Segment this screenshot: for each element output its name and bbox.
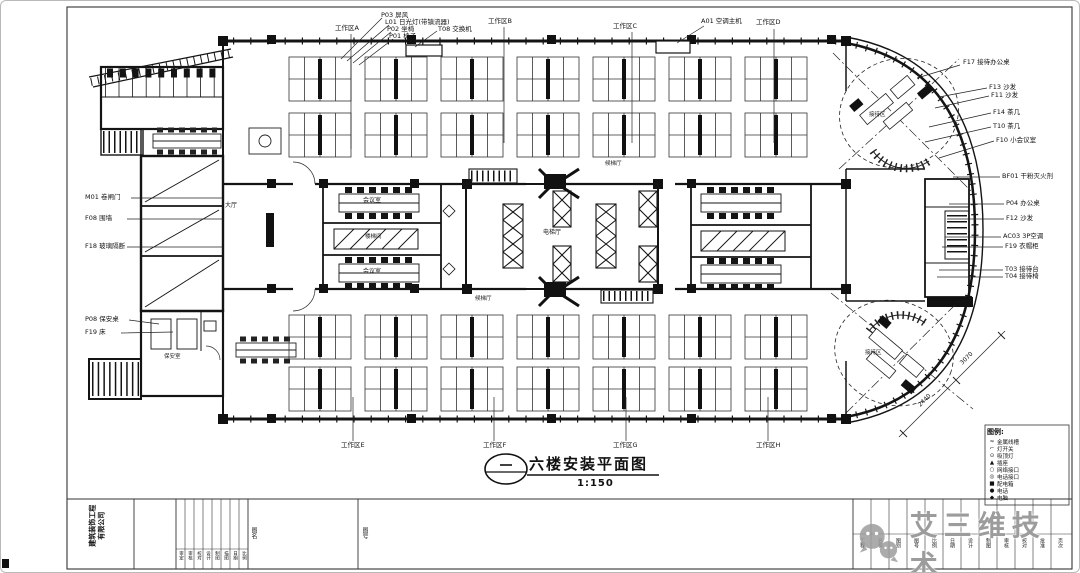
legend-symbol: ⌐: [987, 446, 997, 452]
callout-right-top-0: F17 接待办公桌: [963, 59, 1010, 66]
work-area-bottom-2: 工作区G: [613, 442, 638, 449]
callout-right-top-3: F14 茶几: [993, 109, 1020, 116]
work-area-top-3: 工作区D: [756, 19, 781, 26]
meeting-block-right: [691, 184, 811, 289]
wechat-icon: [853, 520, 905, 568]
sign-cell-1: 审核: [187, 551, 192, 560]
sign-cell-4: 制图: [214, 551, 219, 560]
room-meeting-1: 会议室: [363, 198, 381, 204]
legend-symbol: ▲: [987, 460, 997, 466]
sign-cell-2: 校对: [196, 551, 201, 560]
work-area-bottom-0: 工作区E: [341, 442, 365, 449]
sign-cell-5: 描图: [223, 551, 228, 560]
work-area-top-0: 工作区A: [335, 25, 359, 32]
legend-symbol: ◆: [987, 495, 997, 501]
floor-plan-drawing: [1, 1, 1080, 573]
work-area-top-2: 工作区C: [613, 23, 637, 30]
callout-top-3: P01 椅子: [389, 33, 416, 40]
callout-left-2: F18 玻璃隔断: [85, 243, 125, 250]
company-line-2: 有限公司: [97, 488, 106, 564]
callout-right-mid-0: BF01 干粉灭火剂: [1002, 173, 1053, 180]
callout-ac-unit: A01 空调主机: [701, 18, 742, 25]
sign-cell-3: 设计: [205, 551, 210, 560]
callout-right-mid-6: T04 接待椅: [1005, 273, 1039, 280]
meeting-block-left: [323, 184, 455, 289]
work-area-bottom-3: 工作区H: [756, 442, 780, 449]
work-area-bottom-1: 工作区F: [483, 442, 506, 449]
dimension-line: [899, 331, 1005, 437]
title-block-col-2: 图号: [361, 527, 367, 539]
legend: 图例: ≈金属线槽 ⌐灯开关 ⊙吸顶灯 ▲插座 ○网络接口 ◎电话接口 ■配电箱…: [987, 427, 1069, 501]
legend-label: 电脑: [997, 494, 1008, 502]
room-reception-top: 接待区: [869, 113, 886, 119]
legend-title: 图例:: [987, 427, 1069, 437]
legend-symbol: ■: [987, 481, 997, 487]
legend-symbol: ○: [987, 467, 997, 473]
callout-left-4: F19 床: [85, 329, 106, 336]
columns: [218, 35, 851, 424]
callout-right-top-2: F11 沙发: [991, 92, 1018, 99]
core-junction-blobs: [539, 169, 579, 306]
callout-right-mid-3: AC03 3P空调: [1003, 233, 1043, 240]
legend-symbol: ⊙: [987, 453, 997, 459]
room-lobby: 大厅: [225, 203, 237, 209]
sign-cell-7: 比例: [241, 551, 246, 560]
corner-mark: [2, 559, 9, 568]
callout-left-0: M01 卷闸门: [85, 194, 120, 201]
title-block-col-1: 图名: [250, 527, 256, 539]
legend-symbol: ≈: [987, 439, 997, 445]
callout-left-3: P08 保安桌: [85, 316, 119, 323]
callout-right-mid-1: P04 办公桌: [1006, 200, 1040, 207]
lobby-furniture: [153, 128, 296, 361]
legend-symbol: ●: [987, 488, 997, 494]
room-security: 保安室: [164, 355, 181, 361]
company-line-1: 建筑装饰工程: [88, 488, 97, 564]
sign-cell-6: 日期: [232, 551, 237, 560]
callout-right-mid-2: F12 沙发: [1006, 215, 1033, 222]
legend-row: ◆电脑: [987, 494, 1069, 501]
room-wait-top: 候梯厅: [605, 162, 622, 168]
left-wing: [89, 49, 233, 399]
room-reception-bottom: 接待区: [865, 351, 882, 357]
sign-cell-0: 审定: [178, 551, 183, 560]
callout-right-top-4: T10 茶几: [993, 123, 1020, 130]
room-meeting-2: 会议室: [363, 269, 381, 275]
room-elevator-hall: 电梯厅: [543, 230, 561, 236]
drawing-sheet: M01 卷闸门 F08 围墙 F18 玻璃隔断 P08 保安桌 F19 床 P0…: [0, 0, 1080, 573]
work-area-top-1: 工作区B: [488, 18, 512, 25]
watermark-text: 艾三维技术: [910, 504, 1079, 573]
callout-switch: T08 交换机: [438, 26, 472, 33]
leader-lines: [121, 18, 1004, 441]
legend-symbol: ◎: [987, 474, 997, 480]
callout-left-1: F08 围墙: [85, 215, 112, 222]
drawing-title: 六楼安装平面图: [529, 453, 648, 474]
callout-right-top-5: F10 小会议室: [996, 137, 1036, 144]
watermark: 艾三维技术: [853, 504, 1079, 573]
company-name: 建筑装饰工程 有限公司: [88, 488, 106, 564]
door-openings: [293, 180, 675, 293]
room-wait-bottom: 候梯厅: [475, 297, 492, 303]
right-side-rooms: [925, 179, 973, 307]
callout-right-mid-4: F19 衣帽柜: [1005, 243, 1039, 250]
callout-right-top-1: F13 沙发: [989, 84, 1016, 91]
drawing-scale: 1:150: [577, 478, 614, 489]
room-stair: 楼梯间: [365, 235, 382, 241]
